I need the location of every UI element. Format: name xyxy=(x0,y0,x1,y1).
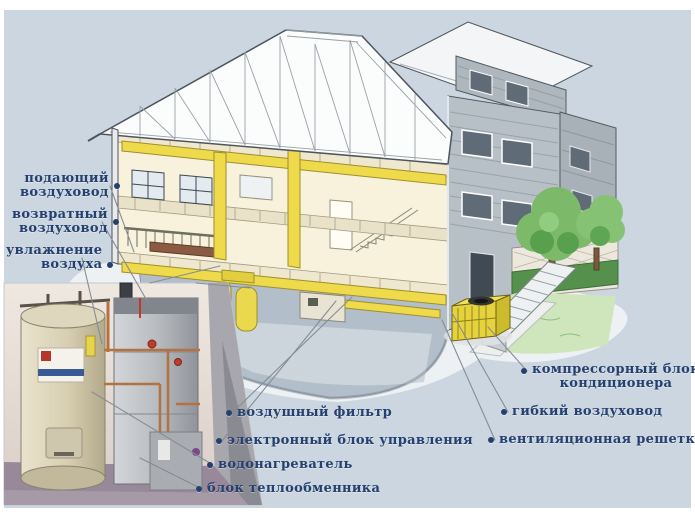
label-compressor-unit: компрессорный блоккондиционера xyxy=(521,363,695,392)
label-humidification: увлажнениевоздуха xyxy=(6,244,113,273)
label-vent-grille-text: вентиляционная решетка xyxy=(499,433,695,447)
blower-cabinet xyxy=(150,432,202,490)
hanging-tank xyxy=(236,287,257,331)
label-return-duct-text: возвратныйвоздуховод xyxy=(12,208,108,237)
label-supply-duct: подающийвоздуховод xyxy=(20,172,120,201)
label-dot xyxy=(113,219,119,225)
label-water-heater: водонагреватель xyxy=(207,458,353,472)
label-dot xyxy=(501,409,507,415)
label-air-filter: воздушный фильтр xyxy=(226,406,392,420)
label-dot xyxy=(114,183,120,189)
label-dot xyxy=(226,410,232,416)
label-dot xyxy=(107,262,113,268)
label-dot xyxy=(521,368,527,374)
label-control-unit: электронный блок управления xyxy=(216,434,473,448)
label-return-duct: возвратныйвоздуховод xyxy=(12,208,119,237)
label-flexible-duct: гибкий воздуховод xyxy=(501,405,662,419)
label-heat-exchanger: блок теплообменника xyxy=(196,482,380,496)
label-dot xyxy=(196,486,202,492)
red-valve xyxy=(175,359,182,366)
label-dot xyxy=(207,462,213,468)
label-compressor-unit-text: компрессорный блоккондиционера xyxy=(532,363,695,392)
label-air-filter-text: воздушный фильтр xyxy=(237,406,392,420)
label-water-heater-text: водонагреватель xyxy=(218,458,353,472)
red-valve xyxy=(148,340,156,348)
label-flexible-duct-text: гибкий воздуховод xyxy=(512,405,662,419)
label-dot xyxy=(488,437,494,443)
label-dot xyxy=(216,438,222,444)
label-control-unit-text: электронный блок управления xyxy=(227,434,473,448)
label-vent-grille: вентиляционная решетка xyxy=(488,433,695,447)
diagram-canvas: подающийвоздуховод возвратныйвоздуховод … xyxy=(0,0,695,521)
yellow-tag xyxy=(86,336,95,356)
label-supply-duct-text: подающийвоздуховод xyxy=(20,172,109,201)
label-humidification-text: увлажнениевоздуха xyxy=(6,244,102,273)
label-heat-exchanger-text: блок теплообменника xyxy=(207,482,380,496)
furnace xyxy=(104,283,202,490)
